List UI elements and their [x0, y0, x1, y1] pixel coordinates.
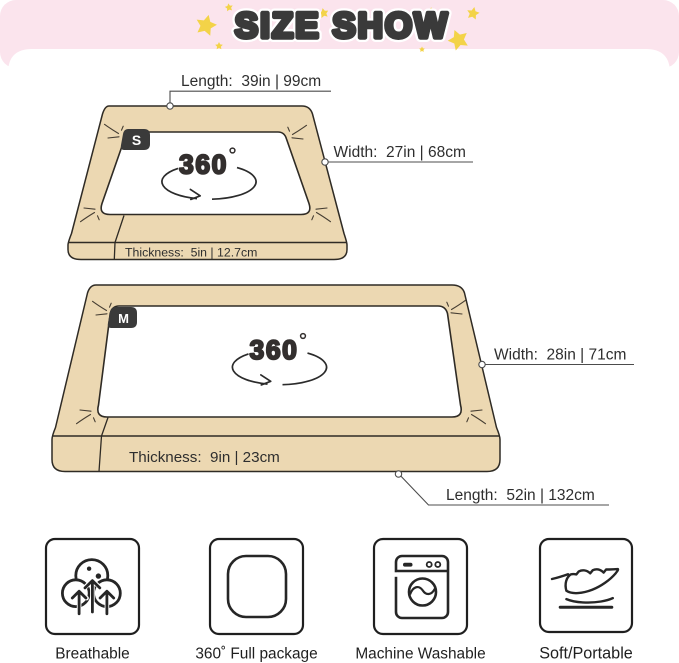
svg-text:Thickness: 5in | 12.7cm: Thickness: 5in | 12.7cm	[125, 245, 257, 259]
svg-text:Width: 27in | 68cm: Width: 27in | 68cm	[334, 144, 466, 161]
svg-text:360˚ Full package: 360˚ Full package	[195, 646, 317, 663]
svg-text:Length: 52in | 132cm: Length: 52in | 132cm	[446, 487, 595, 504]
svg-text:Machine Washable: Machine Washable	[355, 646, 485, 663]
svg-text:Thickness: 9in | 23cm: Thickness: 9in | 23cm	[129, 449, 280, 466]
svg-text:SIZE SHOW: SIZE SHOW	[235, 6, 449, 45]
svg-text:Soft/Portable: Soft/Portable	[539, 645, 633, 663]
svg-text:S: S	[132, 132, 141, 148]
svg-text:M: M	[118, 311, 129, 326]
svg-text:Breathable: Breathable	[55, 646, 129, 663]
svg-text:Width: 28in | 71cm: Width: 28in | 71cm	[494, 347, 626, 364]
svg-text:Length: 39in | 99cm: Length: 39in | 99cm	[181, 73, 321, 90]
